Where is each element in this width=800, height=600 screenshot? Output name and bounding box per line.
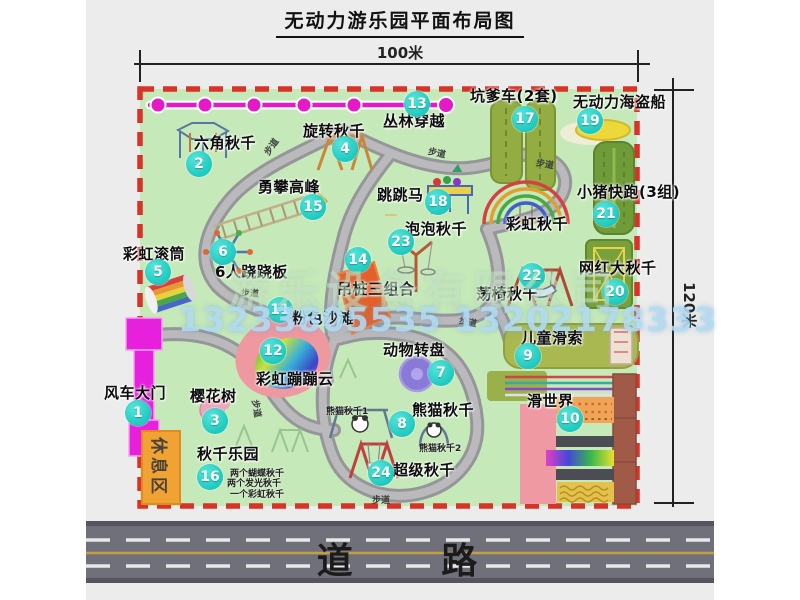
road-label: 道 路 (86, 532, 714, 584)
page-title: 无动力游乐园平面布局图 (86, 6, 714, 38)
dimension-label-right: 120米 (679, 282, 700, 328)
animal-carousel-shape (400, 357, 434, 391)
dimension-label-top: 100米 (330, 42, 470, 63)
park-layout-plan: 无动力游乐园平面布局图 100米 120米 道 路 休息区 游乐设备有限公司 1… (0, 0, 800, 600)
piggy-run-mat (594, 142, 634, 234)
rest-area-label: 休息区 (149, 437, 173, 501)
big-swing-mat (586, 240, 632, 308)
kids-zipline-pad (504, 324, 638, 368)
